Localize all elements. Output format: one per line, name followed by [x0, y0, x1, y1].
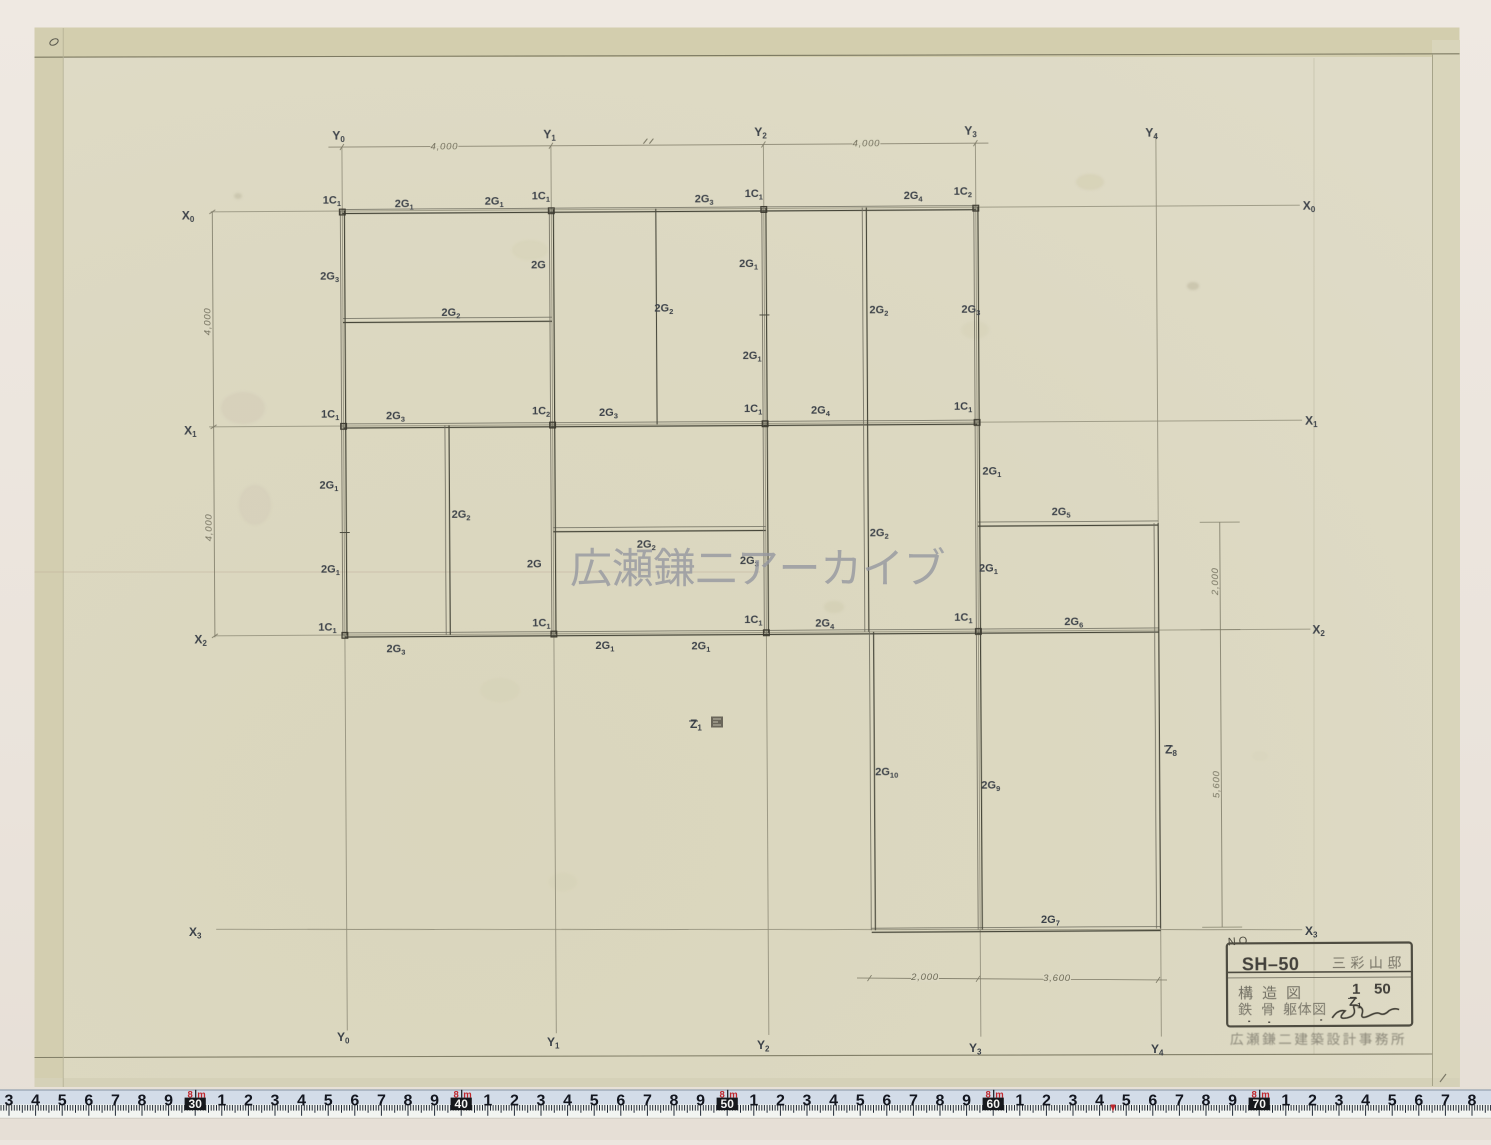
svg-text:m: m: [1261, 1089, 1269, 1100]
svg-text:8: 8: [1468, 1093, 1477, 1110]
svg-text:8: 8: [1252, 1089, 1257, 1100]
svg-text:8: 8: [404, 1093, 413, 1110]
svg-text:m: m: [463, 1089, 471, 1100]
svg-text:3: 3: [803, 1093, 812, 1110]
svg-text:2: 2: [1308, 1093, 1317, 1110]
svg-text:1: 1: [217, 1093, 226, 1110]
svg-text:6: 6: [616, 1093, 625, 1110]
svg-text:6: 6: [1414, 1093, 1423, 1110]
svg-text:8: 8: [670, 1093, 679, 1110]
svg-text:2: 2: [244, 1093, 253, 1110]
svg-text:1: 1: [1015, 1093, 1024, 1110]
svg-text:2G: 2G: [531, 259, 546, 271]
svg-text:5: 5: [1388, 1093, 1397, 1110]
svg-text:7: 7: [1441, 1093, 1450, 1110]
svg-text:8: 8: [986, 1089, 991, 1100]
svg-text:3: 3: [5, 1093, 14, 1110]
svg-text:7: 7: [909, 1093, 918, 1110]
svg-text:2: 2: [510, 1093, 519, 1110]
svg-text:3: 3: [1335, 1093, 1344, 1110]
svg-text:3,600: 3,600: [1043, 973, 1071, 984]
svg-text:9: 9: [1228, 1093, 1237, 1110]
svg-text:2,000: 2,000: [1210, 567, 1221, 596]
svg-text:2: 2: [776, 1093, 785, 1110]
svg-text:m: m: [729, 1089, 737, 1100]
svg-text:4: 4: [829, 1093, 838, 1110]
svg-text:4: 4: [1095, 1093, 1104, 1110]
svg-text:7: 7: [111, 1093, 120, 1110]
svg-text:8: 8: [188, 1089, 193, 1100]
svg-text:3: 3: [537, 1093, 546, 1110]
svg-text:50: 50: [1374, 981, 1391, 998]
svg-text:2: 2: [1042, 1093, 1051, 1110]
svg-text:4: 4: [31, 1093, 40, 1110]
svg-text:5: 5: [1122, 1093, 1131, 1110]
svg-text:8: 8: [454, 1089, 459, 1100]
svg-text:8: 8: [138, 1093, 147, 1110]
svg-text:4,000: 4,000: [202, 307, 213, 335]
svg-text:8: 8: [720, 1089, 725, 1100]
svg-text:5: 5: [58, 1093, 67, 1110]
svg-text:NO: NO: [1227, 935, 1250, 949]
svg-text:SH–50: SH–50: [1242, 954, 1300, 974]
svg-text:2G: 2G: [527, 558, 542, 570]
svg-text:5,600: 5,600: [1211, 770, 1222, 798]
svg-text:9: 9: [696, 1093, 705, 1110]
svg-text:6: 6: [1148, 1093, 1157, 1110]
svg-text:7: 7: [643, 1093, 652, 1110]
svg-text:2,000: 2,000: [910, 972, 939, 983]
svg-text:4,000: 4,000: [852, 138, 880, 149]
svg-text:9: 9: [430, 1093, 439, 1110]
svg-text:1: 1: [749, 1093, 758, 1110]
svg-text:4: 4: [563, 1093, 572, 1110]
svg-text:4: 4: [297, 1093, 306, 1110]
svg-text:5: 5: [856, 1093, 865, 1110]
svg-text:3: 3: [271, 1093, 280, 1110]
svg-text:4,000: 4,000: [430, 141, 458, 152]
svg-text:9: 9: [164, 1093, 173, 1110]
svg-text:4: 4: [1361, 1093, 1370, 1110]
svg-text:9: 9: [962, 1093, 971, 1110]
svg-text:3: 3: [1069, 1093, 1078, 1110]
svg-text:4,000: 4,000: [204, 513, 215, 541]
svg-text:8: 8: [936, 1093, 945, 1110]
svg-text:m: m: [995, 1089, 1003, 1100]
svg-text:5: 5: [590, 1093, 599, 1110]
svg-text:5: 5: [324, 1093, 333, 1110]
svg-text:m: m: [197, 1089, 205, 1100]
svg-text:6: 6: [350, 1093, 359, 1110]
svg-text:7: 7: [1175, 1093, 1184, 1110]
svg-text:7: 7: [377, 1093, 386, 1110]
svg-text:6: 6: [84, 1093, 93, 1110]
svg-text:1: 1: [483, 1093, 492, 1110]
svg-text:6: 6: [882, 1093, 891, 1110]
svg-text:8: 8: [1202, 1093, 1211, 1110]
svg-text:1: 1: [1281, 1093, 1290, 1110]
